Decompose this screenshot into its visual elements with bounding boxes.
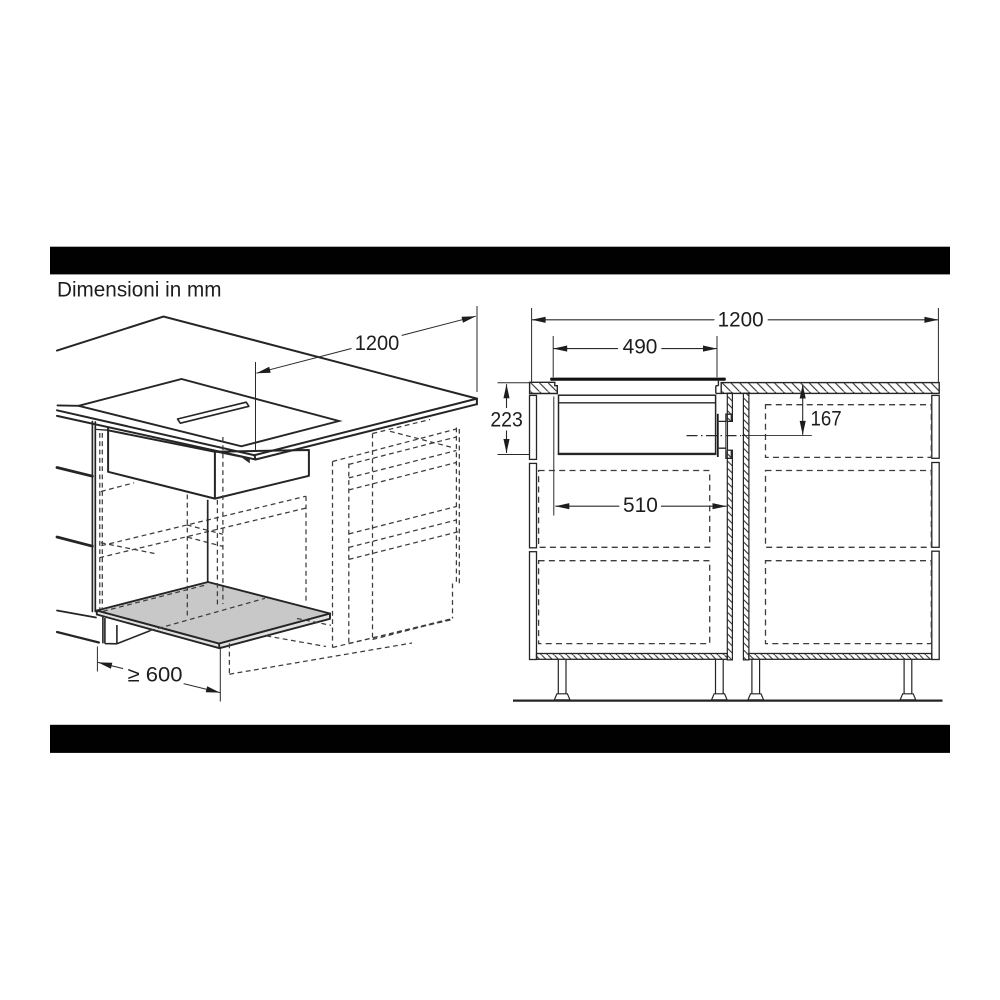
- svg-text:223: 223: [490, 409, 523, 432]
- svg-text:1200: 1200: [355, 332, 400, 355]
- svg-text:510: 510: [623, 494, 658, 517]
- svg-text:Dimensioni in mm: Dimensioni in mm: [57, 279, 222, 302]
- svg-text:1200: 1200: [718, 309, 764, 332]
- svg-text:167: 167: [811, 408, 842, 431]
- svg-text:490: 490: [623, 335, 658, 358]
- svg-text:≥ 600: ≥ 600: [128, 664, 183, 687]
